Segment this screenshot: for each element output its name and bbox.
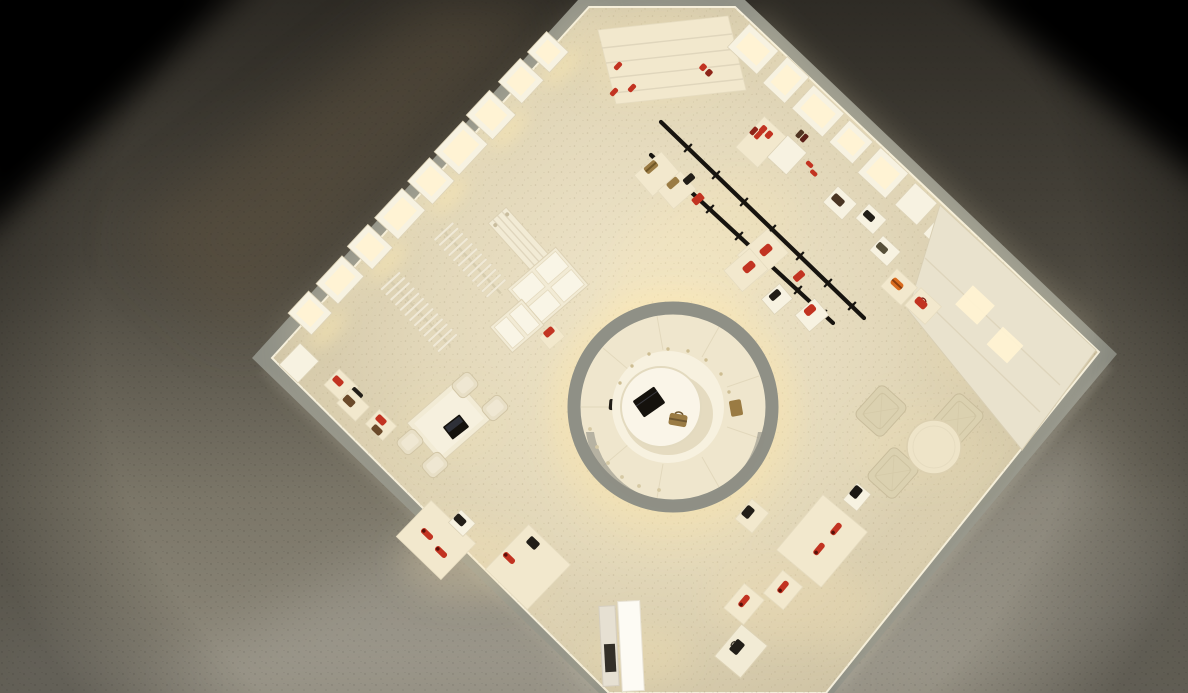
- vignette: [0, 0, 1188, 693]
- store-render: [0, 0, 1188, 693]
- render-canvas: [0, 0, 1188, 693]
